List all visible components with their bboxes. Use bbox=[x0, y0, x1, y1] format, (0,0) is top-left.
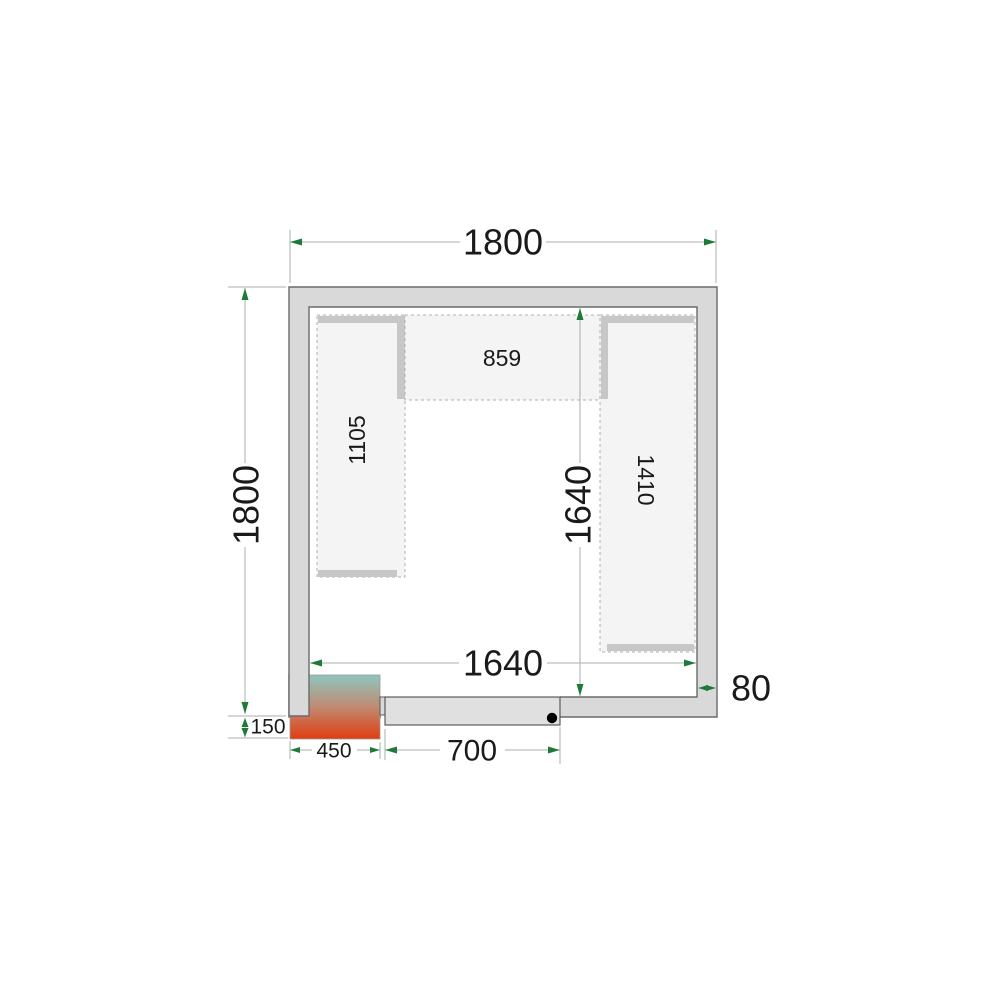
shelf-bar bbox=[397, 316, 405, 399]
shelf-right-label: 1410 bbox=[633, 454, 659, 505]
arrow-up-icon bbox=[242, 718, 249, 727]
arrow-up-icon bbox=[577, 308, 584, 320]
dim-overall-depth: 1800 bbox=[226, 287, 287, 716]
arrow-right-icon bbox=[684, 660, 696, 667]
shelf-bar bbox=[318, 316, 404, 323]
dim-condenser-offset: 150 bbox=[228, 716, 288, 739]
dim-condenser-offset-label: 150 bbox=[250, 716, 285, 739]
shelf-bar bbox=[602, 316, 694, 323]
dim-inner-depth-label: 1640 bbox=[558, 465, 599, 545]
shelf-left: 1105 bbox=[317, 315, 405, 577]
dim-condenser-width-label: 450 bbox=[316, 740, 351, 763]
left-wall-fill bbox=[289, 674, 309, 716]
left-wall-over-condenser bbox=[289, 674, 309, 716]
shelf-left-label: 1105 bbox=[344, 415, 370, 464]
arrow-down-icon bbox=[242, 702, 249, 714]
arrow-right-icon bbox=[548, 747, 560, 754]
door-handle-dot bbox=[547, 713, 557, 723]
shelf-bar bbox=[318, 570, 397, 577]
shelf-right: 1410 bbox=[600, 315, 695, 652]
arrow-down-icon bbox=[242, 728, 249, 737]
floor-plan-canvas: 1105 859 1410 1800 1800 1640 bbox=[0, 0, 1000, 1000]
shelf-bar bbox=[607, 644, 694, 651]
dim-door-width-label: 700 bbox=[447, 735, 497, 768]
dim-overall-width-label: 1800 bbox=[463, 222, 543, 263]
arrow-left-icon bbox=[385, 747, 397, 754]
shelf-bar bbox=[601, 316, 608, 399]
dim-inner-width-label: 1640 bbox=[463, 643, 543, 684]
dim-wall-thickness-label: 80 bbox=[731, 668, 771, 709]
door-panel bbox=[385, 697, 560, 725]
arrow-right-icon bbox=[370, 747, 380, 753]
arrow-right-icon bbox=[704, 239, 716, 246]
shelf-back: 859 bbox=[405, 315, 600, 400]
dim-door-width: 700 bbox=[385, 727, 560, 768]
arrow-left-icon bbox=[290, 747, 300, 753]
arrow-up-icon bbox=[242, 288, 249, 300]
dim-overall-depth-label: 1800 bbox=[226, 465, 267, 545]
dim-condenser-width: 450 bbox=[290, 740, 380, 763]
arrow-left-icon bbox=[290, 239, 302, 246]
shelf-back-label: 859 bbox=[483, 345, 521, 371]
dim-overall-width: 1800 bbox=[290, 222, 716, 284]
floor-plan: 1105 859 1410 1800 1800 1640 bbox=[0, 0, 1000, 1000]
arrow-down-icon bbox=[577, 684, 584, 696]
arrow-left-icon bbox=[310, 660, 322, 667]
